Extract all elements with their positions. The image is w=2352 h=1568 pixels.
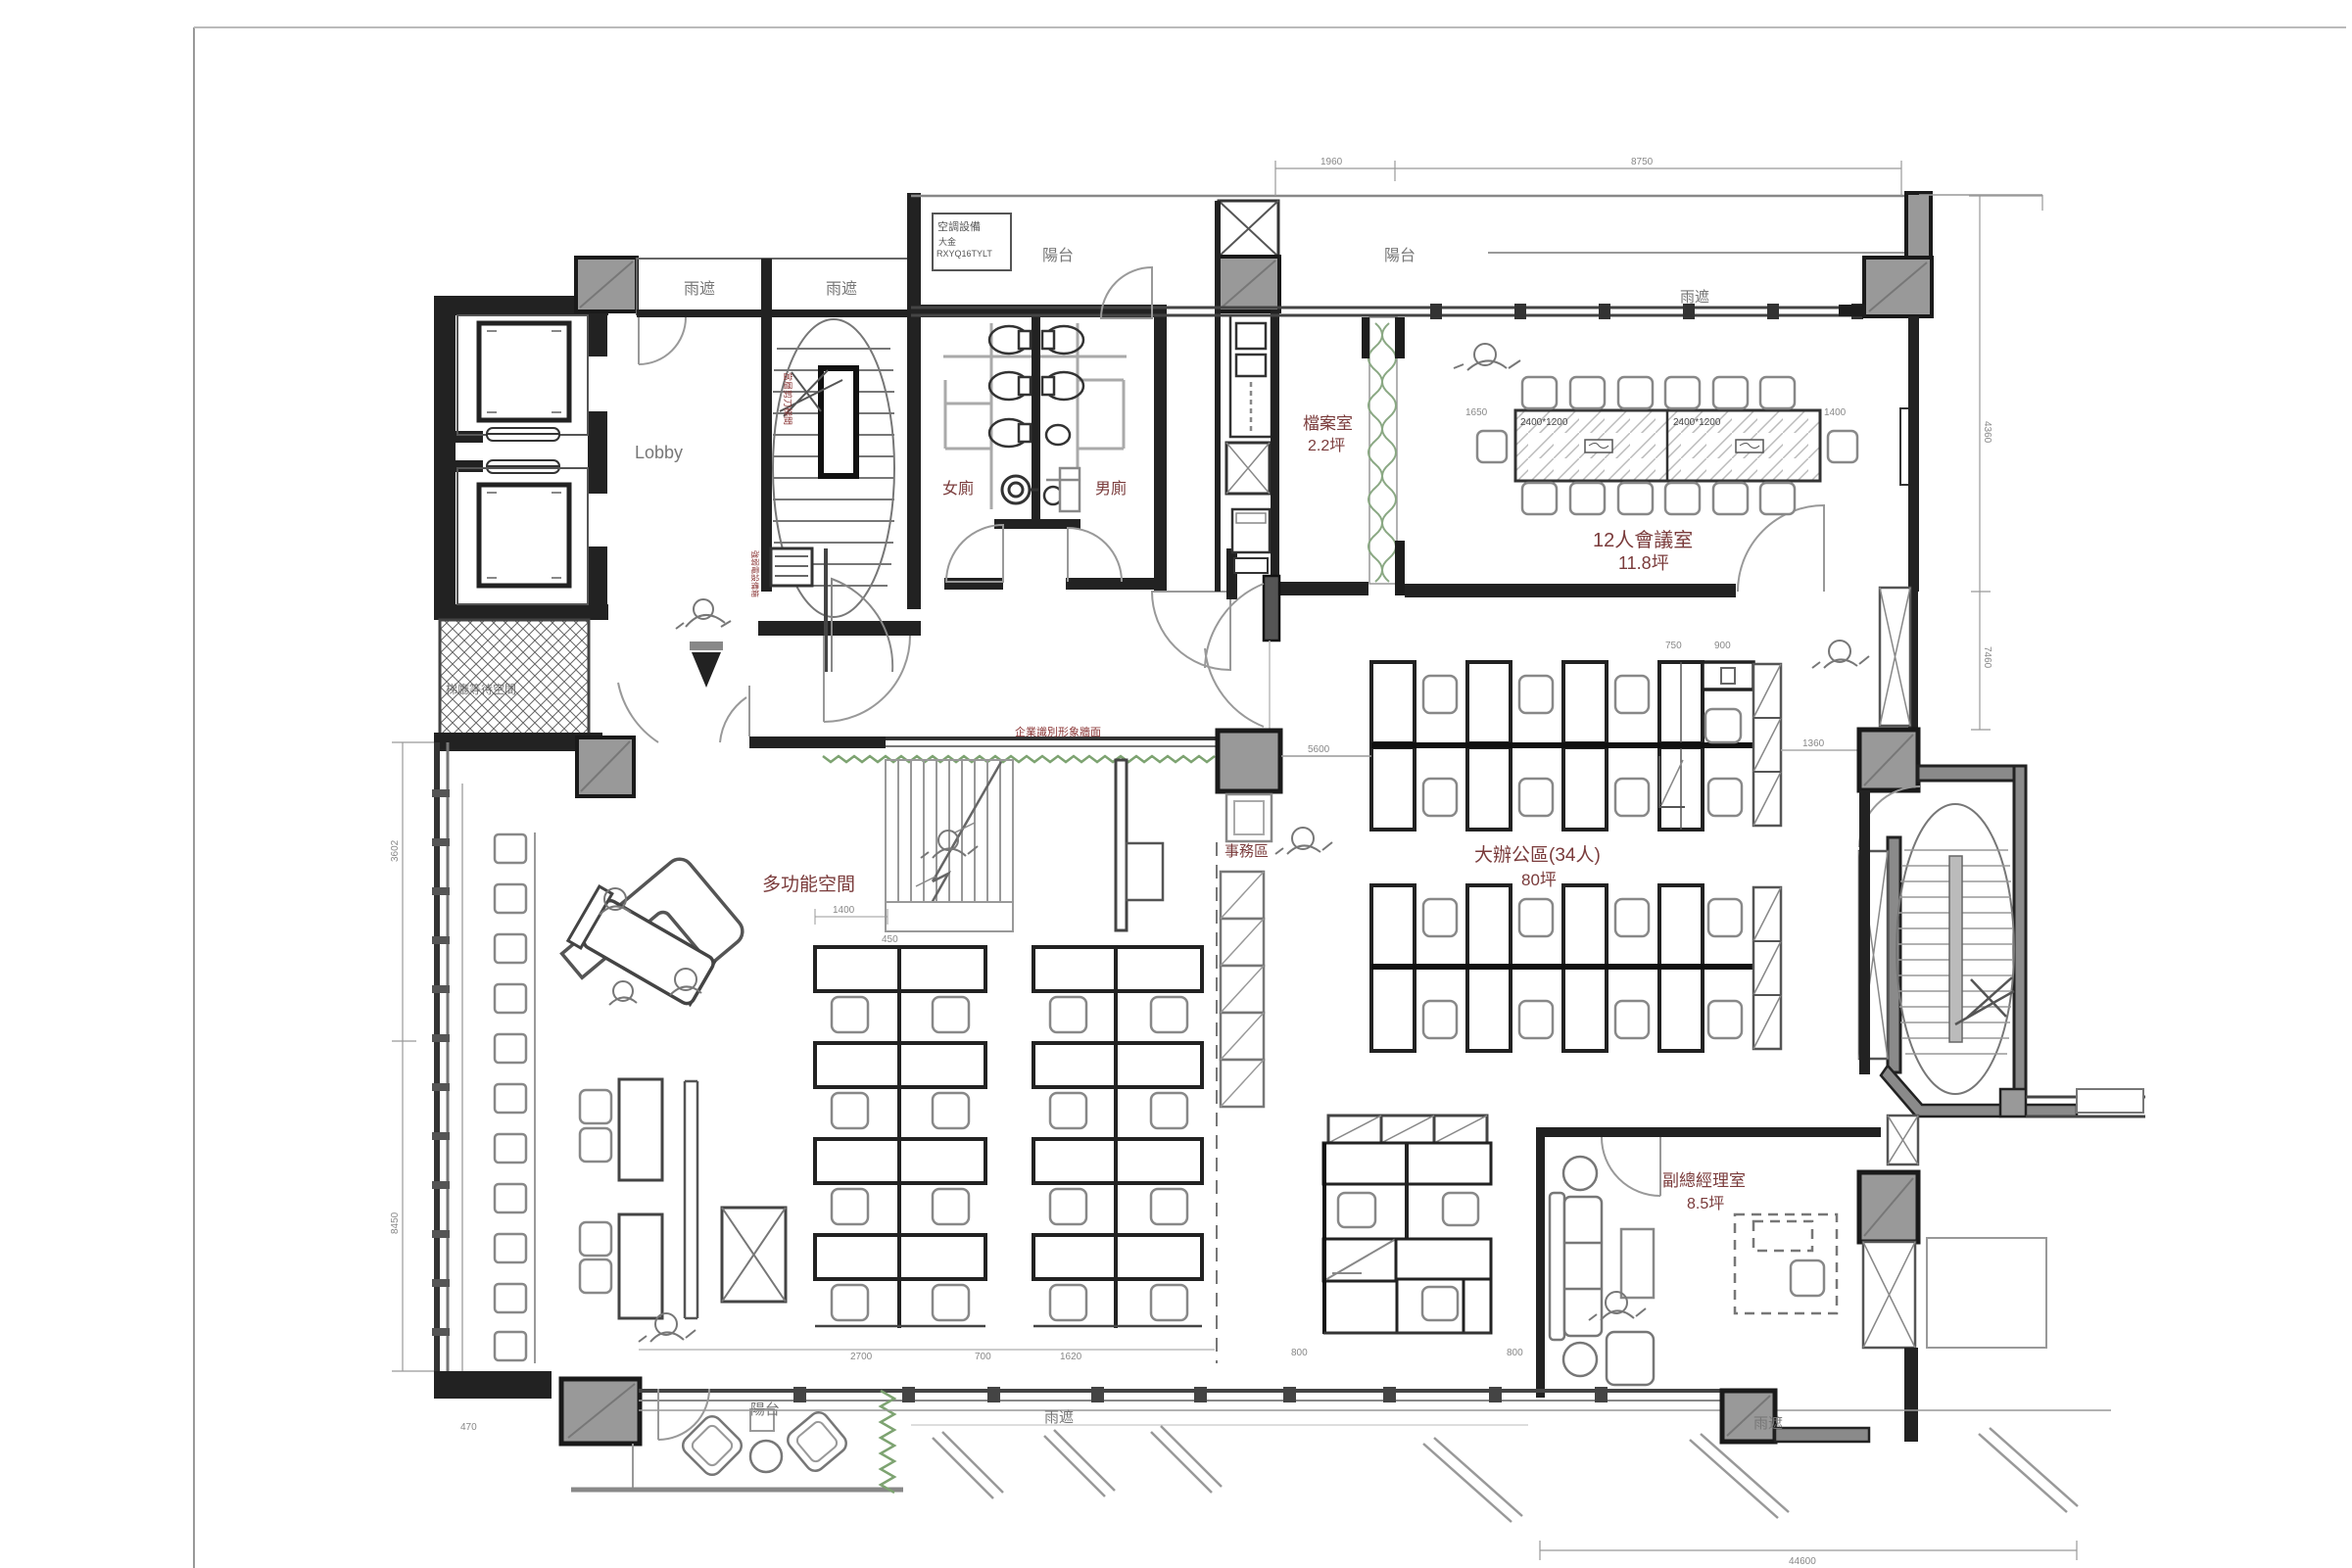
svg-text:梯廳等待空間: 梯廳等待空間: [446, 682, 516, 696]
svg-text:8750: 8750: [1631, 157, 1654, 167]
svg-text:8.5坪: 8.5坪: [1687, 1195, 1724, 1212]
svg-text:900: 900: [1714, 641, 1731, 651]
svg-text:1400: 1400: [833, 905, 855, 916]
svg-text:800: 800: [1291, 1348, 1308, 1358]
svg-text:8450: 8450: [390, 1212, 401, 1234]
svg-text:當層剪刀梯間: 當層剪刀梯間: [783, 372, 793, 425]
svg-text:雨遮: 雨遮: [684, 280, 715, 298]
svg-text:2400*1200: 2400*1200: [1673, 417, 1721, 428]
svg-text:空調設備: 空調設備: [937, 219, 981, 233]
svg-text:1400: 1400: [1824, 407, 1847, 418]
svg-text:7460: 7460: [1982, 646, 1992, 669]
svg-text:5600: 5600: [1308, 744, 1330, 755]
svg-text:女廁: 女廁: [942, 479, 974, 498]
svg-text:450: 450: [882, 934, 898, 945]
svg-text:大辦公區(34人): 大辦公區(34人): [1474, 844, 1601, 866]
svg-text:80坪: 80坪: [1521, 871, 1557, 889]
svg-text:Lobby: Lobby: [635, 443, 683, 462]
svg-text:事務區: 事務區: [1224, 843, 1269, 860]
svg-text:男廁: 男廁: [1095, 479, 1127, 498]
svg-text:陽台: 陽台: [1042, 247, 1074, 264]
svg-text:雨遮: 雨遮: [826, 280, 857, 298]
svg-text:副總經理室: 副總經理室: [1662, 1171, 1746, 1190]
svg-text:企業識別形象牆面: 企業識別形象牆面: [1015, 725, 1101, 738]
svg-text:44600: 44600: [1789, 1556, 1816, 1567]
svg-text:2.2坪: 2.2坪: [1308, 437, 1345, 454]
svg-text:RXYQ16TYLT: RXYQ16TYLT: [936, 249, 992, 259]
svg-text:1360: 1360: [1802, 738, 1825, 749]
svg-text:470: 470: [460, 1422, 477, 1433]
svg-text:2700: 2700: [850, 1352, 873, 1362]
svg-text:750: 750: [1665, 641, 1682, 651]
svg-text:陽台: 陽台: [1384, 247, 1416, 264]
svg-text:大金: 大金: [938, 236, 956, 247]
svg-text:檔案室: 檔案室: [1303, 414, 1353, 433]
svg-text:4360: 4360: [1982, 421, 1992, 444]
svg-text:雨遮: 雨遮: [1680, 289, 1709, 306]
svg-text:800: 800: [1507, 1348, 1523, 1358]
svg-text:11.8坪: 11.8坪: [1618, 553, 1669, 573]
svg-text:12人會議室: 12人會議室: [1593, 529, 1693, 551]
svg-text:700: 700: [975, 1352, 991, 1362]
svg-text:雨遮: 雨遮: [1044, 1409, 1074, 1426]
svg-text:2400*1200: 2400*1200: [1520, 417, 1568, 428]
svg-text:強弱電設備箱: 強弱電設備箱: [750, 550, 760, 597]
svg-text:3602: 3602: [390, 839, 401, 862]
svg-text:雨遮: 雨遮: [1753, 1415, 1783, 1432]
svg-text:1960: 1960: [1320, 157, 1343, 167]
svg-text:1650: 1650: [1465, 407, 1488, 418]
svg-text:1620: 1620: [1060, 1352, 1082, 1362]
svg-text:多功能空間: 多功能空間: [762, 874, 855, 895]
